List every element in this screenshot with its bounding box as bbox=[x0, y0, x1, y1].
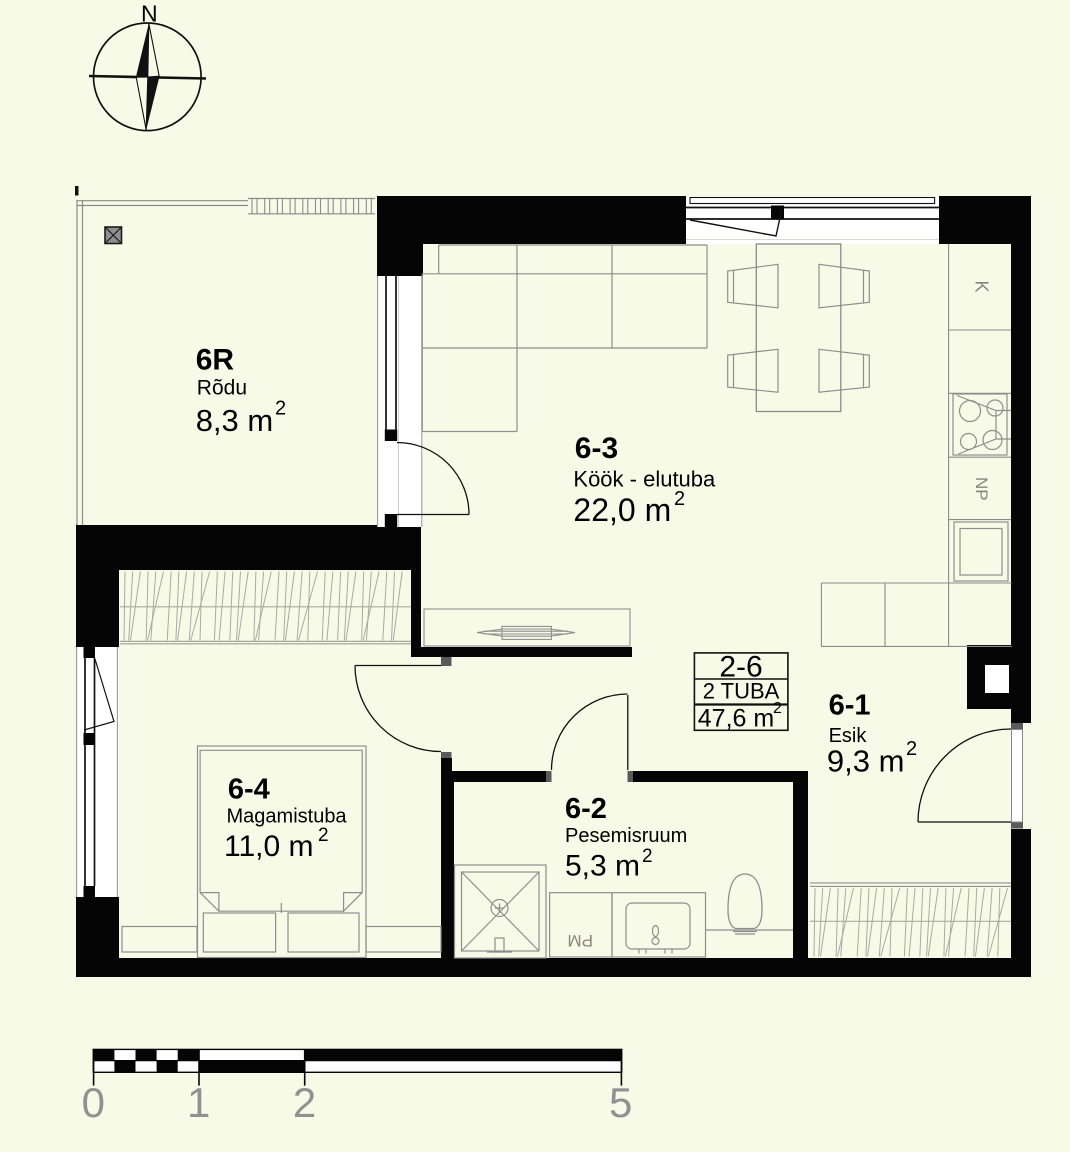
svg-text:2: 2 bbox=[293, 1079, 316, 1126]
svg-text:11,0 m: 11,0 m bbox=[224, 830, 314, 863]
svg-text:K: K bbox=[972, 281, 992, 293]
svg-text:Rõdu: Rõdu bbox=[197, 377, 247, 400]
svg-text:6-3: 6-3 bbox=[575, 432, 618, 465]
svg-text:2: 2 bbox=[773, 700, 782, 717]
svg-text:Magamistuba: Magamistuba bbox=[227, 806, 348, 828]
svg-text:N: N bbox=[141, 1, 158, 27]
svg-text:Köök - elutuba: Köök - elutuba bbox=[573, 467, 716, 492]
svg-text:Pesemisruum: Pesemisruum bbox=[565, 825, 687, 847]
svg-text:2: 2 bbox=[275, 398, 286, 420]
svg-text:2: 2 bbox=[318, 825, 329, 846]
svg-text:6R: 6R bbox=[196, 343, 235, 376]
svg-text:9,3 m: 9,3 m bbox=[827, 744, 905, 779]
svg-text:2: 2 bbox=[674, 488, 685, 510]
svg-text:0: 0 bbox=[82, 1079, 105, 1126]
svg-text:2 TUBA: 2 TUBA bbox=[703, 679, 780, 704]
svg-text:2: 2 bbox=[642, 846, 653, 867]
svg-text:6-2: 6-2 bbox=[565, 793, 607, 825]
svg-text:47,6 m: 47,6 m bbox=[698, 705, 774, 733]
svg-text:PM: PM bbox=[568, 931, 594, 950]
svg-text:2: 2 bbox=[906, 738, 917, 760]
svg-text:8,3 m: 8,3 m bbox=[196, 403, 274, 438]
svg-text:NP: NP bbox=[972, 477, 991, 501]
svg-text:5: 5 bbox=[609, 1079, 632, 1126]
svg-text:6-4: 6-4 bbox=[228, 774, 270, 806]
svg-text:5,3 m: 5,3 m bbox=[565, 850, 640, 883]
svg-text:1: 1 bbox=[187, 1079, 210, 1126]
svg-text:22,0 m: 22,0 m bbox=[573, 492, 671, 528]
svg-text:6-1: 6-1 bbox=[829, 690, 871, 722]
